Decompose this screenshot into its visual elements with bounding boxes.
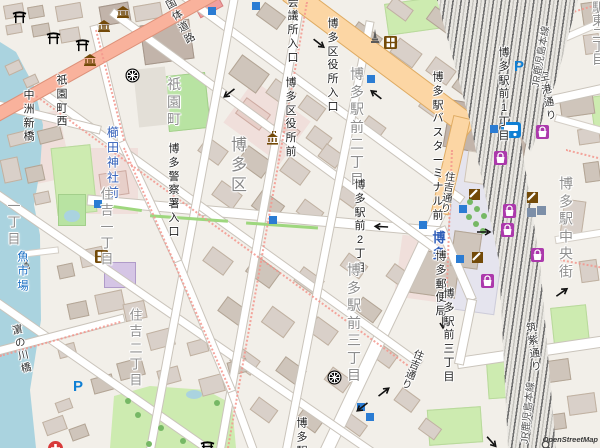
- map-label-nakasu-shinbashi: 中洲新橋: [24, 90, 35, 145]
- building: [57, 262, 76, 279]
- map-label-shoko-kaigisho-iriguchi: 商工会議 所入口: [288, 0, 299, 65]
- footpath: [566, 149, 600, 161]
- building: [256, 2, 286, 30]
- osm-attribution[interactable]: OpenStreetMap: [541, 435, 598, 444]
- map-canvas[interactable]: PP 国体道路商工会議 所入口博多区役 所入口博多区役 所前博多駅前二丁 目博多…: [0, 0, 600, 448]
- building: [68, 423, 89, 441]
- map-label-kuyakusho-mae: 博多区役 所前: [286, 77, 297, 160]
- building: [5, 23, 22, 36]
- map-label-ekihigashi: 駅東二丁目: [589, 1, 600, 66]
- building: [67, 300, 90, 320]
- map-label-sumiyoshi-1chome: 住吉一丁目: [100, 186, 113, 267]
- svg-text:P: P: [73, 378, 83, 393]
- building: [261, 306, 295, 339]
- building: [42, 415, 68, 437]
- map-label-ekimae-bottom: 博多駅前: [297, 418, 308, 448]
- building: [94, 289, 126, 314]
- building: [567, 392, 598, 416]
- map-label-keisatsusho-iriguchi: 博多警察 署入口: [169, 143, 180, 239]
- building: [33, 190, 51, 205]
- map-label-gion-cho-nishi: 祇園町西: [57, 75, 68, 130]
- map-label-ekimae-1chome: 博多駅前 1丁目: [499, 47, 510, 143]
- map-label-ekimae-2chome-district: 博多駅前二丁 目: [350, 66, 364, 189]
- map-label-gion-cho: 祇園町: [167, 76, 181, 129]
- svg-text:P: P: [514, 58, 524, 73]
- map-label-ekimae-3chome-district: 博多駅前三丁 目: [347, 262, 361, 385]
- map-label-eki-chuogai: 博多駅中央街: [559, 176, 573, 281]
- building: [250, 396, 279, 423]
- map-label-ekimae-3chome-stop: 博多駅前 三丁目: [444, 288, 455, 384]
- building: [27, 5, 45, 20]
- map-label-uo-ichiba: 魚市場: [17, 250, 29, 293]
- building: [393, 387, 420, 413]
- map-label-kuyakusho-iriguchi: 博多区役 所入口: [328, 18, 339, 114]
- map-label-ekimae-2chome-stop: 博多駅前 2丁目: [355, 179, 366, 275]
- landuse-pd: [64, 210, 80, 222]
- building: [55, 398, 74, 414]
- map-label-itchome-cut: 一丁目: [7, 199, 20, 248]
- landuse-pd: [186, 390, 202, 399]
- building: [202, 246, 234, 276]
- building: [279, 156, 311, 186]
- map-label-hakata-ku: 博多区: [231, 136, 249, 196]
- building: [583, 161, 600, 183]
- building: [55, 2, 83, 22]
- map-label-sumiyoshi-2chome: 住吉二丁目: [129, 307, 142, 388]
